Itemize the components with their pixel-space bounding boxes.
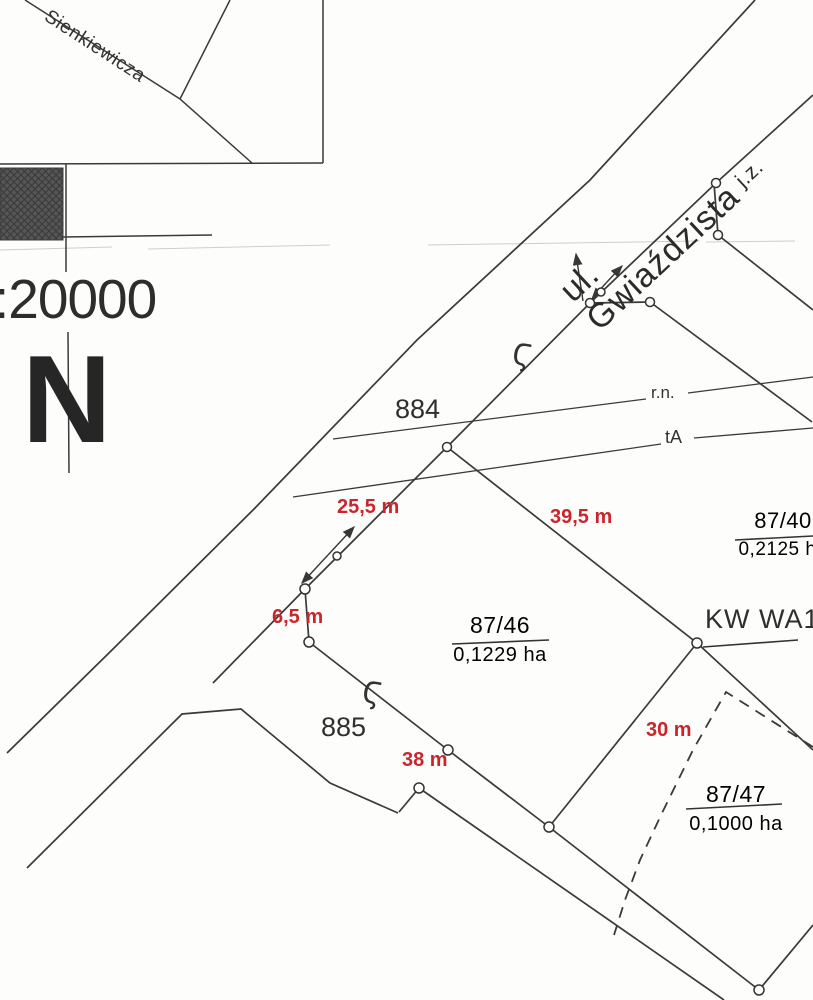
parcel-label-885: 885 (321, 714, 366, 741)
kw-register-label: KW WA1P (705, 606, 813, 633)
parcel-87-46-number: 87/46 (448, 612, 552, 639)
measurement-6-5m: 6,5 m (272, 607, 323, 627)
parcel-label-884: 884 (395, 396, 440, 423)
utility-label-ta: tA (665, 428, 682, 446)
cadastral-map-scan: Sienkiewicza ul. Gwiaździstaj.z. :20000 … (0, 0, 813, 1000)
label-underlines (452, 536, 813, 809)
utility-label-rn: r.n. (651, 384, 675, 401)
survey-points (300, 179, 764, 996)
measurement-38m: 38 m (402, 750, 448, 770)
parcel-label-87-47: 87/47 0,1000 ha (684, 781, 788, 836)
utility-lines (293, 377, 813, 497)
parcel-87-40-number: 87/40 (733, 508, 813, 534)
parcel-label-87-40: 87/40 0,2125 ha (733, 508, 813, 561)
map-linework (0, 0, 813, 1000)
north-letter: N (22, 338, 112, 462)
scale-text: :20000 (0, 272, 156, 327)
measurement-25-5m: 25,5 m (337, 497, 399, 517)
parcel-87-46-area: 0,1229 ha (448, 644, 552, 667)
parcel-87-40-area: 0,2125 ha (733, 539, 813, 561)
measurement-39-5m: 39,5 m (550, 507, 612, 527)
measurement-30m: 30 m (646, 720, 692, 740)
parcel-87-47-area: 0,1000 ha (684, 813, 788, 836)
scale-bar-hatch-block (0, 168, 63, 240)
parcel-label-87-46: 87/46 0,1229 ha (448, 612, 552, 667)
parcel-87-47-number: 87/47 (684, 781, 788, 808)
